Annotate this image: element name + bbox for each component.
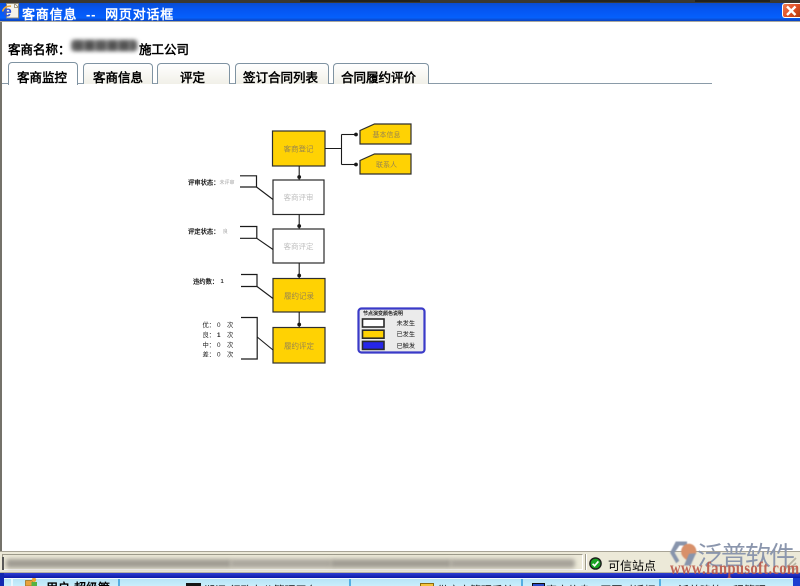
svg-text:客商评审: 客商评审	[284, 192, 314, 202]
svg-text:已发生: 已发生	[397, 331, 416, 339]
svg-text:履约评定: 履约评定	[284, 341, 314, 351]
svg-text:次: 次	[227, 340, 234, 349]
svg-text:0: 0	[217, 322, 221, 329]
svg-text:未发生: 未发生	[397, 320, 416, 328]
svg-text:基本信息: 基本信息	[373, 130, 401, 139]
svg-text:次: 次	[227, 350, 234, 359]
svg-text:0: 0	[217, 352, 221, 359]
svg-text:履约记录: 履约记录	[284, 291, 314, 301]
svg-text:未评审: 未评审	[220, 179, 235, 186]
svg-text:次: 次	[227, 320, 234, 329]
svg-text:违约数：: 违约数：	[193, 277, 218, 286]
svg-text:客商登记: 客商登记	[284, 144, 314, 154]
svg-text:已触发: 已触发	[397, 342, 416, 350]
svg-text:中：: 中：	[203, 340, 216, 349]
svg-text:1: 1	[217, 332, 221, 339]
svg-text:客商评定: 客商评定	[284, 241, 314, 251]
svg-text:联系人: 联系人	[376, 160, 397, 169]
svg-text:1: 1	[221, 279, 225, 285]
svg-text:优：: 优：	[203, 320, 216, 329]
svg-text:评定状态：: 评定状态：	[188, 227, 219, 236]
svg-text:良: 良	[223, 228, 228, 235]
svg-text:次: 次	[227, 330, 234, 339]
svg-text:差：: 差：	[203, 350, 216, 359]
svg-text:良：: 良：	[203, 330, 216, 339]
svg-text:评审状态：: 评审状态：	[188, 178, 219, 187]
svg-text:节点演变颜色说明: 节点演变颜色说明	[363, 310, 403, 317]
svg-text:0: 0	[217, 342, 221, 349]
